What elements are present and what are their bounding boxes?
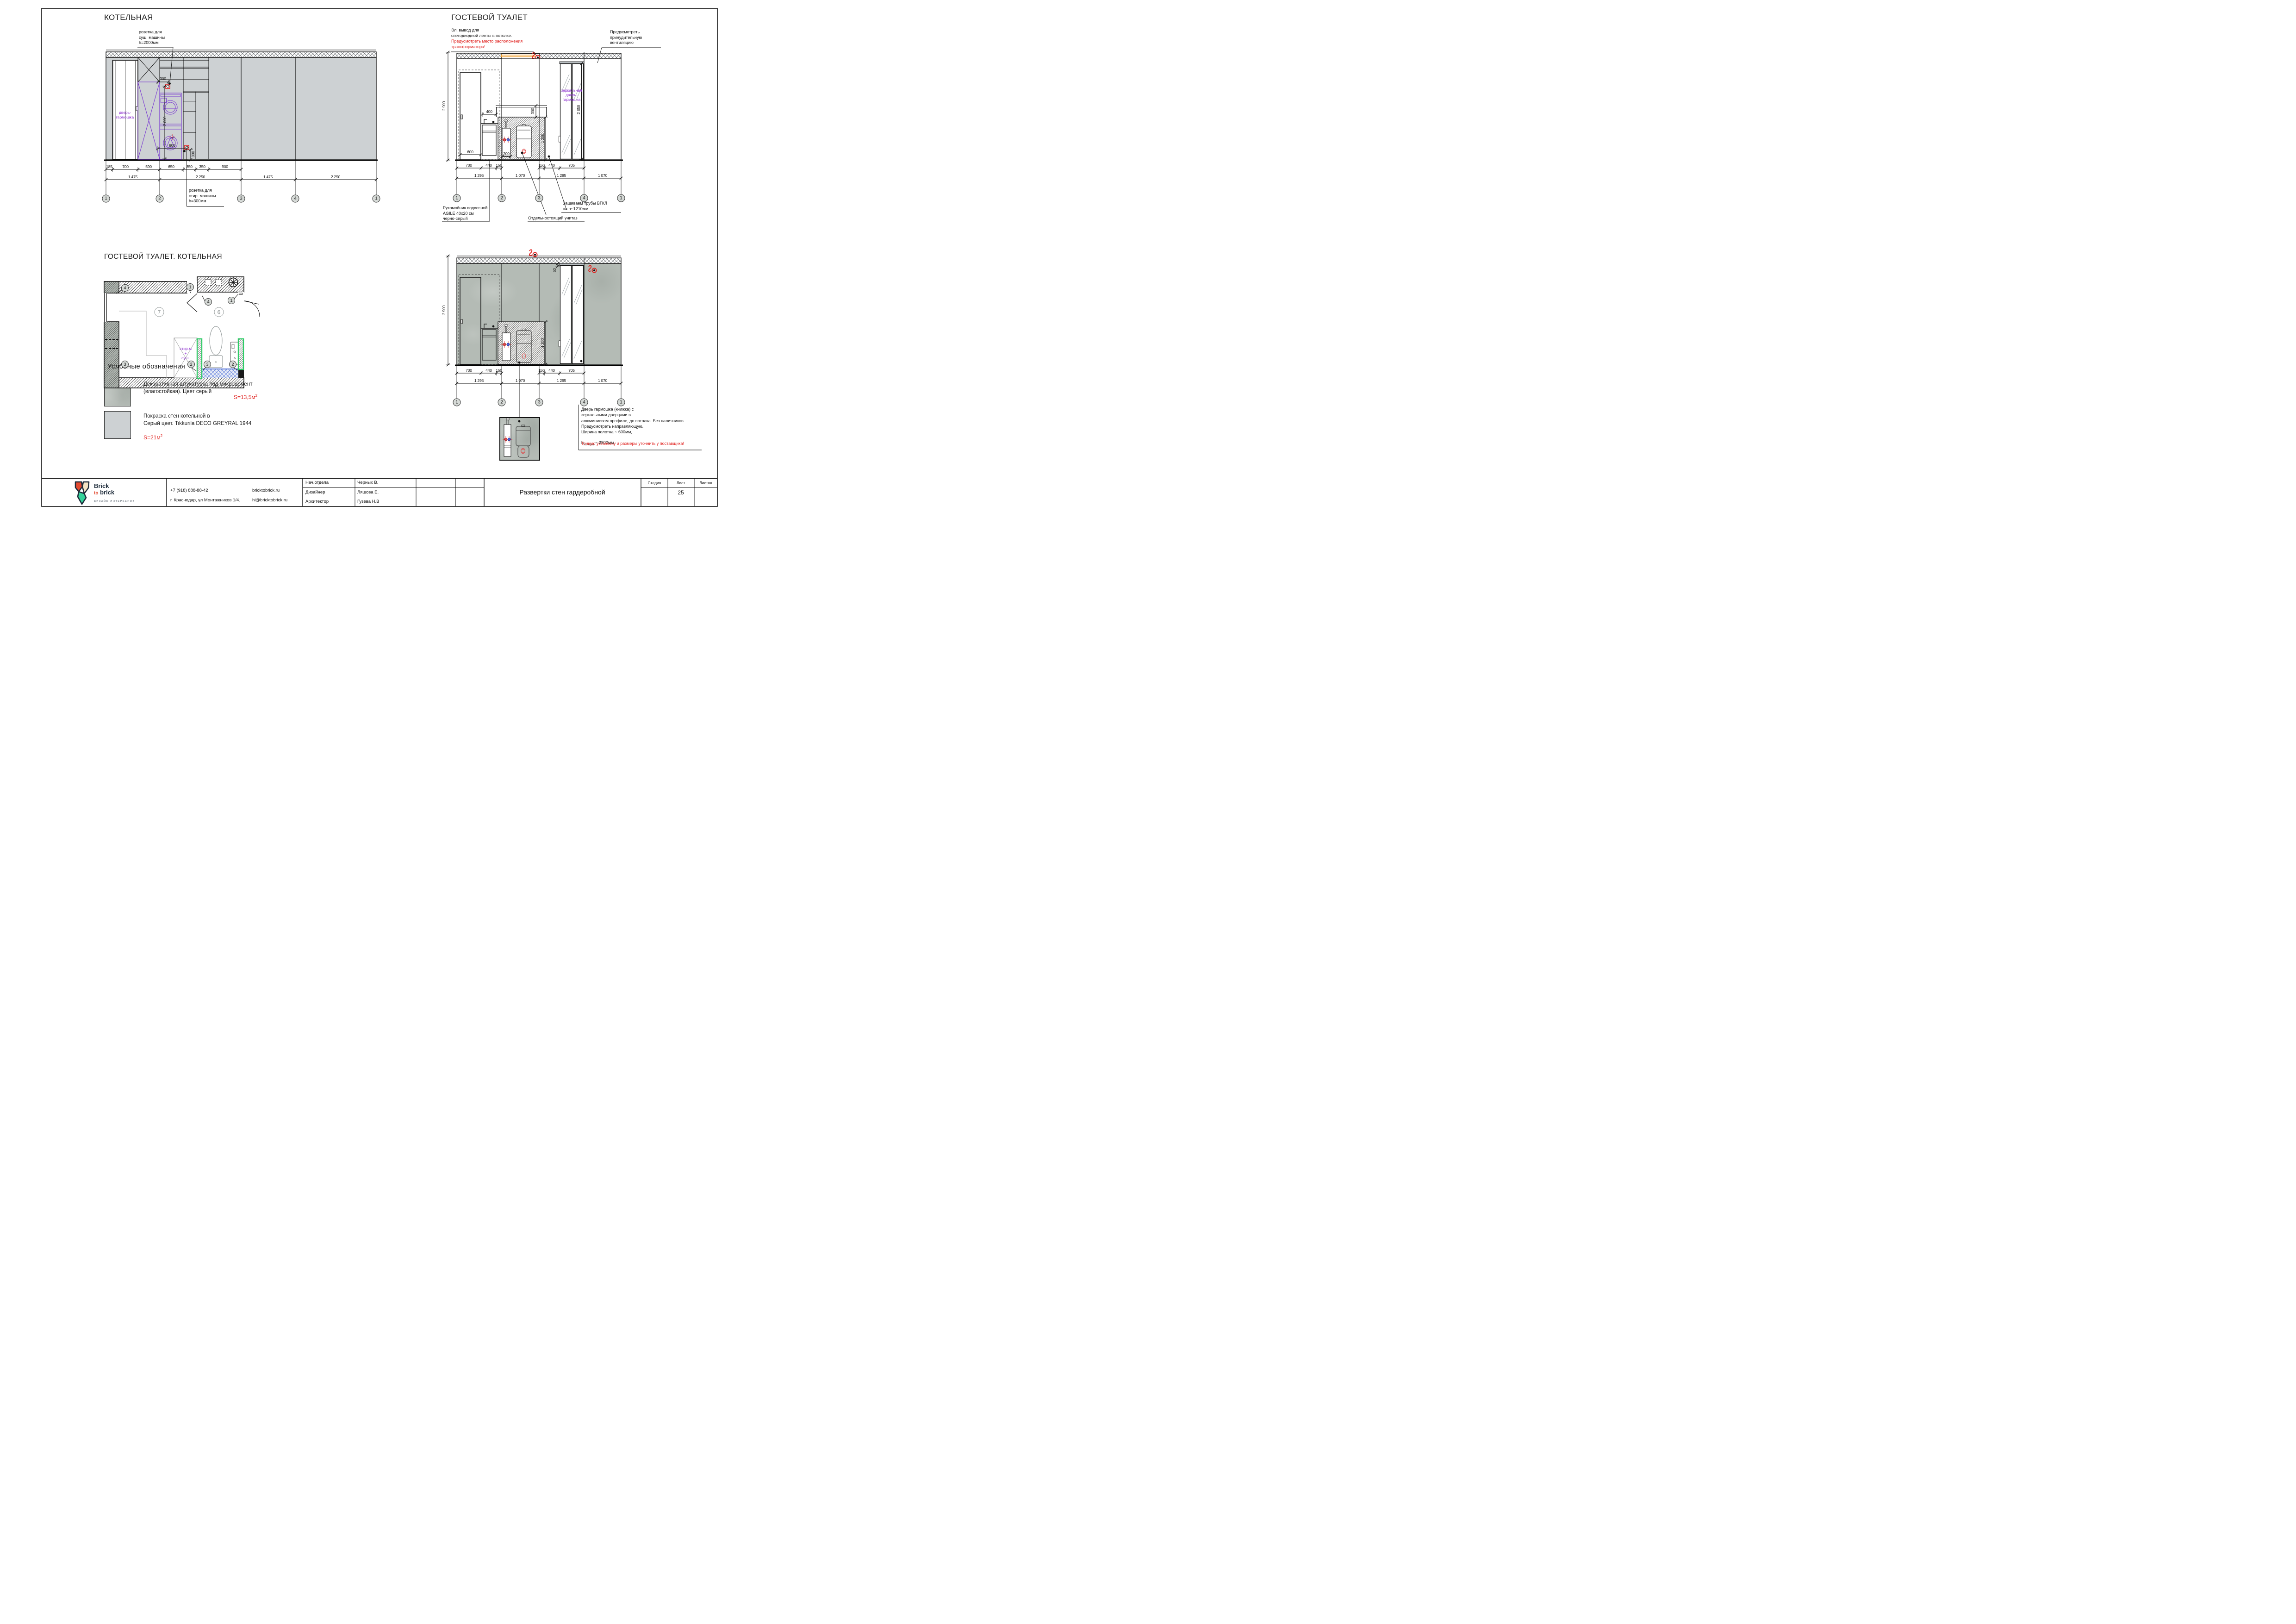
sheet-label: Лист (677, 481, 685, 485)
name-2: Ляшова Е. (357, 490, 379, 495)
niche-detail-box (500, 418, 540, 460)
grid-bubble: 2 (498, 194, 506, 202)
guest-wc-title: ГОСТЕВОЙ ТУАЛЕТ (451, 13, 528, 22)
legend-item2-text: Покраска стен котельной в Серый цвет. Ti… (143, 412, 251, 427)
room-bubble-6: 6 (214, 307, 224, 317)
dim-2850: 2 850 (576, 105, 581, 114)
plan-marker: 2 (229, 361, 236, 368)
grid-bubble: 1 (373, 195, 380, 203)
dim-1200-bottom: 1 200 (540, 338, 545, 348)
led-strip (501, 55, 535, 58)
dim-2900-top: 2 900 (442, 101, 446, 111)
stage-label: Стадия (648, 481, 661, 485)
note-led-red: Предусмотреть место расположения трансфо… (451, 39, 523, 50)
plan-marker: 2 (187, 361, 195, 368)
sheets-label: Листов (699, 481, 712, 485)
upper-cabinet-crossed (138, 57, 160, 82)
boiler-title: КОТЕЛЬНАЯ (104, 13, 153, 22)
boiler-elevation (104, 50, 378, 160)
dim-800: 800 (169, 143, 175, 148)
wardrobe-elevation (455, 250, 623, 365)
legend-item2-area: S=21м2 (143, 428, 162, 440)
role-1: Нач.отдела (305, 480, 329, 485)
wardrobe-door-note-red: Точную установку и размеры уточнить у по… (581, 441, 684, 447)
note-pipes: Зашиваем трубы ВГКЛ на h~1210мм (563, 201, 607, 212)
name-1: Черных В. (357, 480, 378, 485)
brand-phone: +7 (918) 888-88-42 (170, 488, 208, 493)
plan-title: ГОСТЕВОЙ ТУАЛЕТ. КОТЕЛЬНАЯ (104, 253, 222, 261)
drawing-sheet: КОТЕЛЬНАЯ ГОСТЕВОЙ ТУАЛЕТ ГОСТЕВОЙ ТУАЛЕ… (0, 0, 726, 513)
plan-marker: 1 (228, 297, 235, 304)
wardrobe-mark-2 (589, 265, 597, 272)
note-sink: Рукомойник подвесной AGILE 40x20 см черн… (443, 206, 487, 222)
floor-plan (103, 277, 260, 388)
brand-logo-icon (75, 482, 89, 504)
grid-bubble: 2 (498, 399, 506, 406)
grid-bubble: 1 (617, 194, 625, 202)
wardrobe-mark-1 (529, 250, 537, 256)
wardrobe-door-note: Дверь гармошка (книжка) с зеркальными дв… (581, 406, 684, 435)
grid-bubble: 4 (580, 399, 588, 406)
wardrobe-door-outline (460, 277, 481, 364)
name-3: Гузева Н.В (357, 499, 380, 504)
sheet-number: 25 (678, 489, 684, 496)
legend-title: Условные обозначения (107, 362, 185, 370)
note-vent: Предусмотреть принудительную вентиляцию (610, 30, 642, 46)
dim-50: 50 (552, 268, 557, 272)
room-bubble-7: 7 (155, 307, 164, 317)
wc-door (460, 73, 481, 160)
legend-item1-area: S=13,5м2 (234, 387, 257, 400)
wc-cistern (516, 125, 531, 158)
role-2: Дизайнер (305, 490, 325, 495)
plan-marker: 3 (121, 361, 129, 368)
note-dryer-socket: розетка для суш. машины h=2000мм (139, 30, 165, 46)
guest-wc-elevation (455, 52, 623, 160)
grid-bubble: 3 (535, 194, 543, 202)
dim-200: 200 (503, 151, 510, 156)
doc-title: Развертки стен гардеробной (519, 488, 605, 496)
wardrobe-washbasin (481, 324, 498, 360)
mirror-door-label: зеркальная дверь- гармошка (561, 88, 582, 102)
dim-2900-bottom: 2 900 (442, 306, 446, 315)
note-wc: Отдельностоящий унитаз (528, 216, 578, 221)
grid-bubble: 3 (535, 399, 543, 406)
note-led: Эл. вывод для светодиодной ленты в потол… (451, 28, 512, 38)
brand-wordmark: Brick to brick ДИЗАЙН ИНТЕРЬЕРОВ (94, 483, 135, 505)
titleblock-lines (42, 478, 717, 506)
plan-marker: 4 (121, 284, 129, 292)
plan-toilet (209, 326, 223, 368)
plan-marker: 1 (187, 283, 194, 291)
dim-400: 400 (486, 109, 492, 114)
dim-300-top: 300 (160, 76, 166, 81)
dim-300-bottom: 300 (191, 151, 195, 157)
grid-bubble: 1 (617, 399, 625, 406)
brand-site[interactable]: bricktobrick.ru (252, 488, 280, 493)
dim-300-niche: 300 (530, 108, 535, 114)
washbasin (481, 119, 498, 156)
grid-bubble: 4 (292, 195, 299, 203)
dim-2000: 2 000 (162, 117, 167, 126)
plan-marker: 3 (204, 361, 211, 368)
brand-email[interactable]: hi@bricktobrick.ru (252, 498, 287, 503)
grid-bubble: 3 (237, 195, 245, 203)
note-washer-socket: розетка для стир. машины h=300мм (189, 188, 216, 204)
dim-600: 600 (467, 150, 473, 154)
dim-1200-top: 1 200 (540, 134, 545, 143)
role-3: Архитектор (305, 499, 329, 504)
grid-bubble: 2 (156, 195, 164, 203)
wardrobe-mirror-door (559, 263, 585, 364)
plan-machines-label: стир.м + суш. (180, 346, 192, 360)
grid-bubble: 1 (102, 195, 110, 203)
plan-marker: 4 (205, 298, 212, 306)
brand-address: г. Краснодар, ул Монтажников 1/4. (170, 498, 240, 503)
grid-bubble: 1 (453, 399, 461, 406)
grid-bubble: 1 (453, 194, 461, 202)
boiler-door-label: дверь- гармошка (116, 110, 134, 119)
